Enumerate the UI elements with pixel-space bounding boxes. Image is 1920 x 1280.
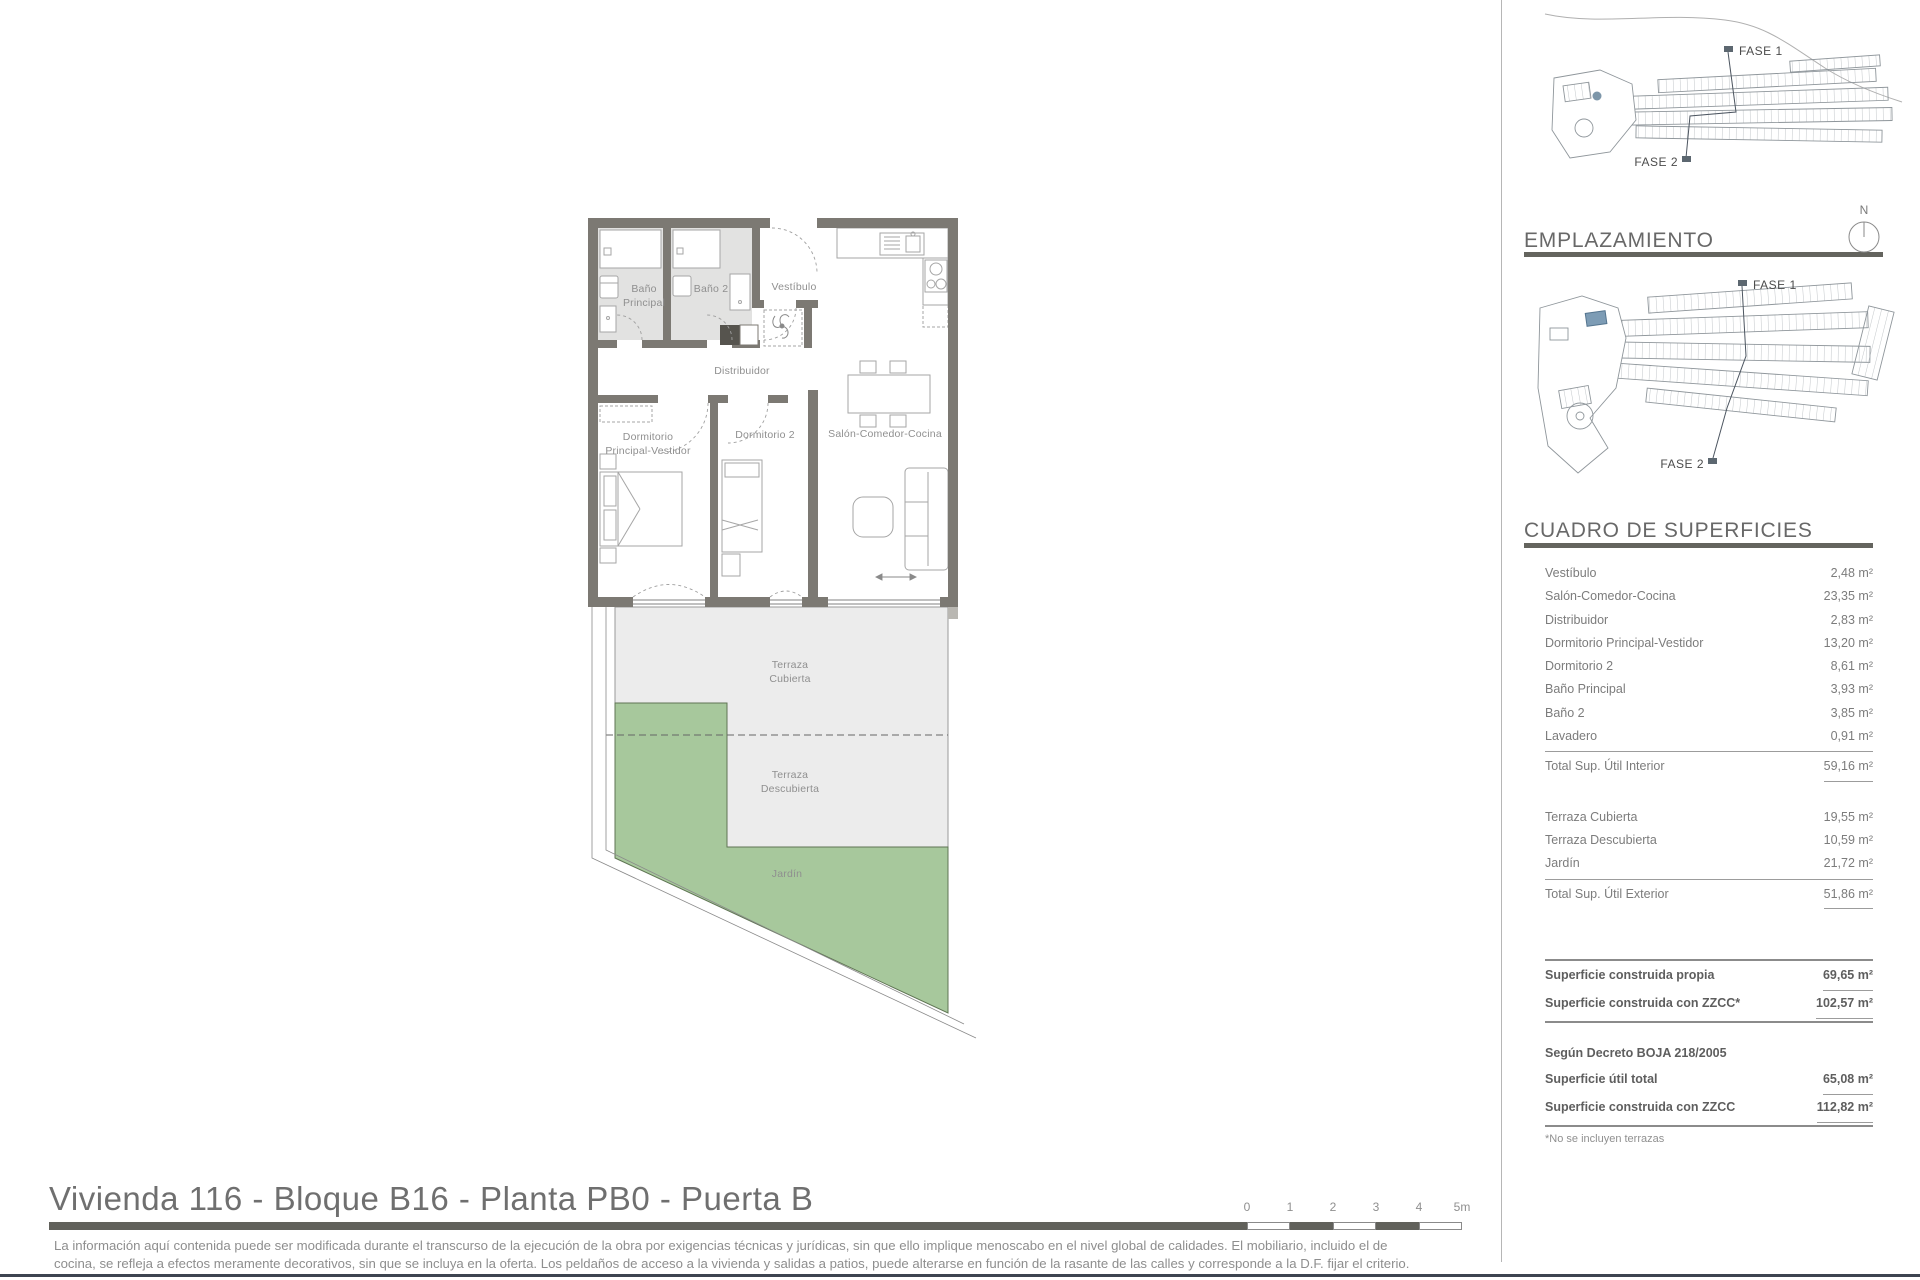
floor-plan: Baño Principal Baño 2 Vestíbulo Distribu…	[560, 200, 980, 1040]
fase2-label: FASE 2	[1634, 155, 1678, 169]
label-jardin: Jardín	[772, 868, 802, 880]
built-label: Superficie útil total	[1545, 1067, 1658, 1092]
toilet1	[600, 276, 618, 298]
built-row: Superficie construida con ZZCC* 102,57 m…	[1545, 991, 1873, 1019]
surface-row: Distribuidor 2,83 m²	[1545, 609, 1873, 632]
surface-label: Distribuidor	[1545, 609, 1608, 632]
disclaimer-line-2: cocina, se refleja a efectos meramente d…	[54, 1255, 1502, 1273]
scale-bar: 0 1 2 3 4 5m	[1225, 1200, 1463, 1232]
surface-value: 3,93 m²	[1831, 678, 1873, 701]
built-label: Superficie construida propia	[1545, 963, 1714, 988]
label-bano-principal: Baño	[631, 283, 656, 295]
siteplan-overview: FASE 1 FASE 2	[1540, 0, 1910, 180]
surface-label: Jardín	[1545, 852, 1580, 875]
sliding-door-arrow	[876, 574, 916, 580]
shower1	[600, 230, 661, 268]
sofa	[905, 468, 948, 570]
desk	[722, 554, 740, 576]
built-value: 102,57 m²	[1816, 991, 1873, 1019]
built-row: Superficie útil total 65,08 m²	[1545, 1067, 1873, 1095]
built-surface-block: Superficie construida propia 69,65 m² Su…	[1545, 959, 1873, 1145]
resort-cluster	[1552, 70, 1636, 158]
label-dormitorio-principal: Dormitorio	[623, 431, 673, 443]
built-row: Superficie construida con ZZCC 112,82 m²	[1545, 1095, 1873, 1123]
resort-cluster	[1538, 296, 1626, 473]
built-value: 112,82 m²	[1817, 1095, 1873, 1123]
shower2	[673, 230, 720, 268]
siteplan-emplazamiento: FASE 1 FASE 2	[1530, 268, 1910, 503]
coffee-table	[853, 497, 893, 537]
fase2-label: FASE 2	[1660, 457, 1704, 471]
surface-row: Dormitorio 2 8,61 m²	[1545, 655, 1873, 678]
label-bano-principal-2: Principal	[623, 297, 665, 309]
surface-value: 21,72 m²	[1824, 852, 1873, 875]
scale-tick-label: 1	[1287, 1200, 1294, 1214]
surface-total-row: Total Sup. Útil Exterior 51,86 m²	[1545, 879, 1873, 909]
surface-label: Salón-Comedor-Cocina	[1545, 585, 1676, 608]
bath2	[730, 274, 750, 310]
terrace-footnote: *No se incluyen terrazas	[1545, 1133, 1873, 1145]
fan-icon	[773, 315, 789, 338]
surface-label: Total Sup. Útil Exterior	[1545, 883, 1669, 906]
fase1-label: FASE 1	[1739, 44, 1783, 58]
location-dot	[1593, 92, 1602, 101]
fase1-marker	[1738, 280, 1747, 286]
terrace-wall-stub	[948, 607, 958, 619]
surface-row: Dormitorio Principal-Vestidor 13,20 m²	[1545, 632, 1873, 655]
surface-value: 51,86 m²	[1824, 883, 1873, 909]
built-value: 69,65 m²	[1823, 963, 1873, 991]
brochure-page: Baño Principal Baño 2 Vestíbulo Distribu…	[0, 0, 1920, 1280]
surface-total-row: Total Sup. Útil Interior 59,16 m²	[1545, 751, 1873, 781]
label-terraza-descubierta: Terraza	[772, 769, 808, 781]
built-row: Superficie construida propia 69,65 m²	[1545, 963, 1873, 991]
surface-value: 0,91 m²	[1831, 725, 1873, 748]
scale-tick-label: 2	[1330, 1200, 1337, 1214]
scale-tick-label: 3	[1373, 1200, 1380, 1214]
fase2-marker	[1682, 156, 1691, 162]
built-label: Superficie construida con ZZCC	[1545, 1095, 1735, 1120]
label-dormitorio-principal-2: Principal-Vestidor	[605, 445, 691, 457]
label-terraza-cubierta-2: Cubierta	[769, 673, 810, 685]
surface-value: 59,16 m²	[1824, 755, 1873, 781]
superficies-underline	[1524, 543, 1873, 548]
surface-label: Baño Principal	[1545, 678, 1626, 701]
surface-label: Vestíbulo	[1545, 562, 1596, 585]
toilet2	[673, 276, 691, 296]
surface-row: Baño 2 3,85 m²	[1545, 702, 1873, 725]
label-distribuidor: Distribuidor	[714, 365, 770, 377]
surface-value: 8,61 m²	[1831, 655, 1873, 678]
label-vestibulo: Vestíbulo	[772, 281, 817, 293]
label-bano2: Baño 2	[694, 283, 728, 295]
surface-value: 10,59 m²	[1824, 829, 1873, 852]
surface-label: Lavadero	[1545, 725, 1597, 748]
superficies-heading: CUADRO DE SUPERFICIES	[1524, 519, 1813, 543]
scale-tick-label: 0	[1244, 1200, 1251, 1214]
label-dormitorio2: Dormitorio 2	[735, 429, 795, 441]
fase1-marker	[1724, 46, 1733, 52]
surface-row: Vestíbulo 2,48 m²	[1545, 562, 1873, 585]
surface-value: 3,85 m²	[1831, 702, 1873, 725]
surface-label: Terraza Descubierta	[1545, 829, 1657, 852]
surface-value: 23,35 m²	[1824, 585, 1873, 608]
utility-box	[740, 325, 758, 345]
emplazamiento-heading: EMPLAZAMIENTO	[1524, 229, 1714, 253]
surface-row: Salón-Comedor-Cocina 23,35 m²	[1545, 585, 1873, 608]
surface-row: Lavadero 0,91 m²	[1545, 725, 1873, 748]
fase2-marker	[1708, 458, 1717, 464]
emplazamiento-underline	[1524, 252, 1883, 257]
north-label: N	[1860, 203, 1869, 217]
disclaimer-line-1: La información aquí contenida puede ser …	[54, 1237, 1502, 1255]
dining-table	[848, 375, 930, 413]
housing-rows	[1606, 55, 1892, 142]
surface-value: 19,55 m²	[1824, 806, 1873, 829]
scale-tick-label: 5m	[1454, 1200, 1471, 1214]
construida-section: Superficie construida propia 69,65 m² Su…	[1545, 959, 1873, 1023]
facade-glazing	[633, 600, 940, 604]
sidebar-divider	[1501, 0, 1502, 1262]
surface-label: Dormitorio Principal-Vestidor	[1545, 632, 1703, 655]
surface-row: Jardín 21,72 m²	[1545, 852, 1873, 875]
surface-row: Terraza Cubierta 19,55 m²	[1545, 806, 1873, 829]
highlighted-unit-block	[1585, 311, 1607, 327]
surface-label: Dormitorio 2	[1545, 655, 1613, 678]
surface-value: 2,83 m²	[1831, 609, 1873, 632]
title-underline	[49, 1222, 1225, 1230]
scale-tick-label: 4	[1416, 1200, 1423, 1214]
north-compass: N	[1842, 200, 1886, 258]
superficies-table: Vestíbulo 2,48 m² Salón-Comedor-Cocina 2…	[1545, 562, 1873, 909]
scale-bar-segments	[1225, 1222, 1462, 1230]
page-title: Vivienda 116 - Bloque B16 - Planta PB0 -…	[49, 1180, 813, 1218]
label-terraza-cubierta: Terraza	[772, 659, 808, 671]
label-salon: Salón-Comedor-Cocina	[828, 428, 942, 440]
surface-value: 13,20 m²	[1824, 632, 1873, 655]
decreto-section: Superficie útil total 65,08 m² Superfici…	[1545, 1065, 1873, 1127]
built-value: 65,08 m²	[1823, 1067, 1873, 1095]
surface-label: Terraza Cubierta	[1545, 806, 1637, 829]
shaft	[720, 325, 740, 345]
decreto-heading: Según Decreto BOJA 218/2005	[1545, 1041, 1873, 1065]
built-label: Superficie construida con ZZCC*	[1545, 991, 1740, 1016]
surface-label: Baño 2	[1545, 702, 1585, 725]
page-bottom-rule	[0, 1274, 1920, 1277]
surface-row: Baño Principal 3,93 m²	[1545, 678, 1873, 701]
wardrobe	[600, 406, 652, 422]
legal-disclaimer: La información aquí contenida puede ser …	[54, 1237, 1502, 1272]
fase1-label: FASE 1	[1753, 278, 1797, 292]
label-terraza-descubierta-2: Descubierta	[761, 783, 819, 795]
surface-row: Terraza Descubierta 10,59 m²	[1545, 829, 1873, 852]
surface-label: Total Sup. Útil Interior	[1545, 755, 1665, 778]
surface-value: 2,48 m²	[1831, 562, 1873, 585]
